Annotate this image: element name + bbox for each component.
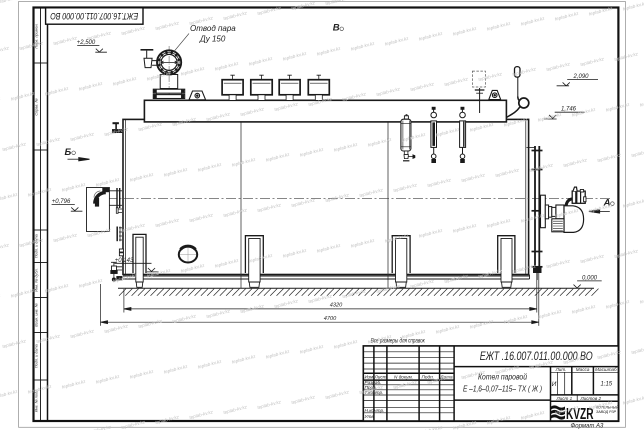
svg-text:4700: 4700 <box>324 316 337 322</box>
svg-text:Масса: Масса <box>576 367 590 372</box>
svg-text:Котел паровой: Котел паровой <box>478 372 527 381</box>
svg-text:Лист 1: Лист 1 <box>556 396 573 401</box>
svg-text:+2,500: +2,500 <box>77 40 96 46</box>
svg-text:Лист: Лист <box>374 375 387 380</box>
svg-text:И: И <box>552 381 557 388</box>
svg-text:Формат А3: Формат А3 <box>571 424 604 430</box>
svg-text:Лит.: Лит. <box>555 367 567 372</box>
svg-text:0,000: 0,000 <box>582 275 598 281</box>
svg-text:Взам. инв. №: Взам. инв. № <box>35 303 39 326</box>
svg-text:+0,796: +0,796 <box>52 199 71 205</box>
svg-text:Справ. №: Справ. № <box>35 98 39 115</box>
svg-text:N докум.: N докум. <box>394 375 413 380</box>
svg-text:1:15: 1:15 <box>600 382 612 388</box>
svg-text:Отвод пара: Отвод пара <box>190 24 236 33</box>
svg-text:Изм.: Изм. <box>365 375 375 380</box>
svg-text:2,090: 2,090 <box>573 74 590 80</box>
svg-text:Н.контр.: Н.контр. <box>365 408 385 413</box>
svg-text:4320: 4320 <box>330 303 343 309</box>
svg-text:Б: Б <box>65 147 72 158</box>
svg-text:ЕЖТ.16.007.011.00.000 ВО: ЕЖТ.16.007.011.00.000 ВО <box>50 11 138 21</box>
svg-text:В: В <box>333 23 340 34</box>
svg-text:Утв.: Утв. <box>365 414 376 419</box>
svg-text:+0,143: +0,143 <box>115 258 134 264</box>
svg-text:Листов 2: Листов 2 <box>580 396 602 401</box>
svg-text:Масштаб: Масштаб <box>595 367 617 372</box>
svg-text:ЗАВОД РЗР: ЗАВОД РЗР <box>596 410 617 414</box>
svg-text:Ду 150: Ду 150 <box>199 35 226 44</box>
svg-text:Е –1,6–0,07–115– ТХ ( Ж ): Е –1,6–0,07–115– ТХ ( Ж ) <box>463 385 542 394</box>
svg-text:Инв. № дубл.: Инв. № дубл. <box>35 268 39 291</box>
svg-text:Подп. и дата: Подп. и дата <box>35 344 39 368</box>
